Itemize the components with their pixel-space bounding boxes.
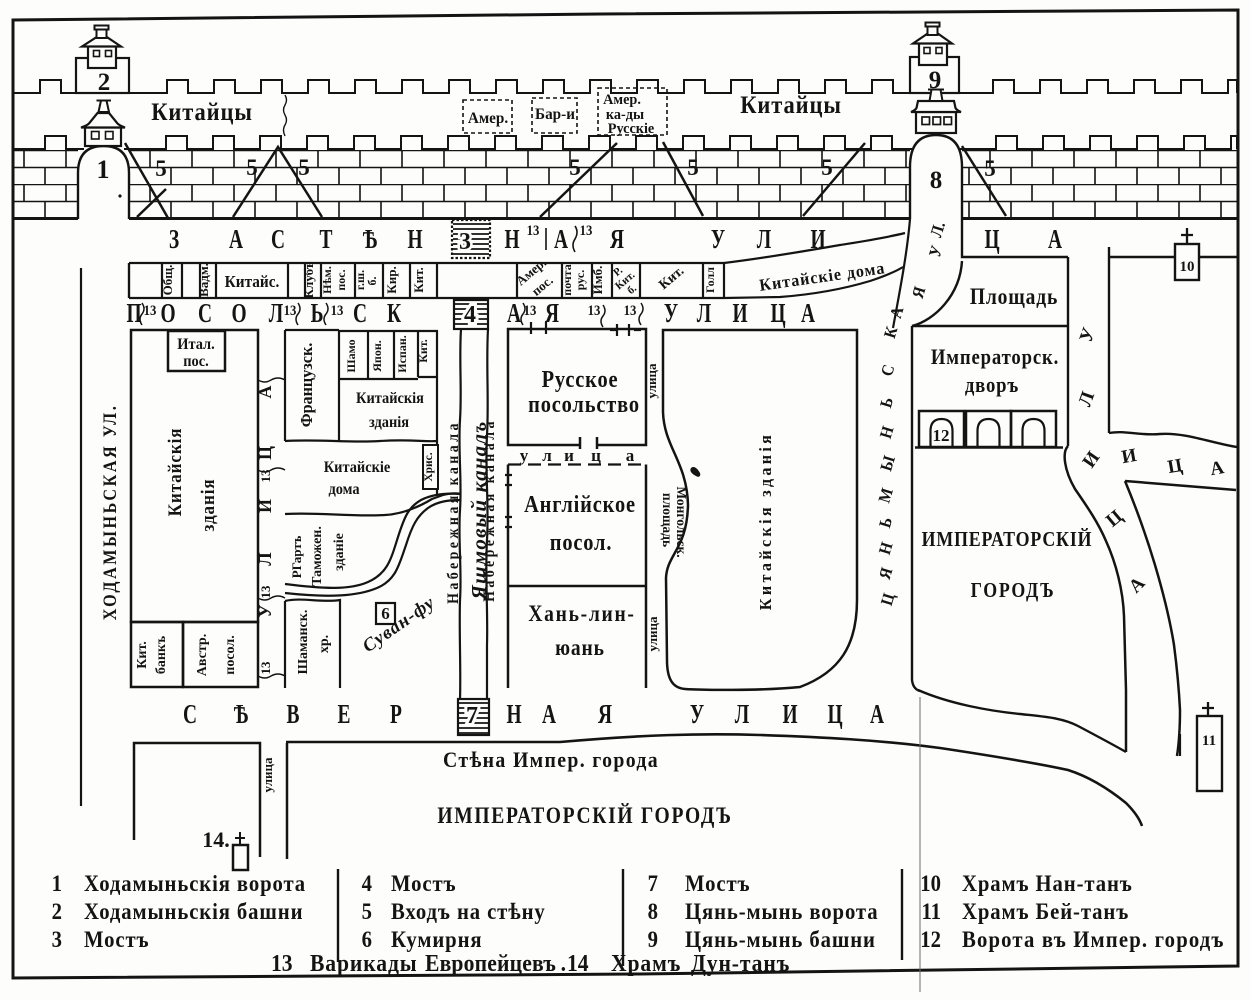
svg-text:Япон.: Япон. [370, 340, 384, 372]
svg-text:А: А [255, 386, 275, 399]
svg-text:Амер.: Амер. [468, 110, 508, 127]
svg-text:Ходамыньскія башни: Ходамыньскія башни [84, 899, 303, 924]
svg-text:12: 12 [933, 426, 950, 445]
svg-text:С: С [271, 225, 285, 255]
svg-text:Ц: Ц [827, 700, 842, 730]
svg-text:ИМПЕРАТОРСКІЙ ГОРОДЪ: ИМПЕРАТОРСКІЙ ГОРОДЪ [437, 803, 732, 829]
svg-text:Хань-лин-: Хань-лин- [528, 601, 635, 627]
svg-text:Варикады: Варикады [310, 950, 418, 976]
svg-text:Европейцевъ .: Европейцевъ . [425, 950, 566, 976]
svg-text:Амер.: Амер. [603, 92, 641, 108]
svg-text:8: 8 [648, 899, 658, 924]
svg-text:С: С [353, 299, 367, 329]
svg-text:13: 13 [524, 303, 537, 319]
svg-text:Русскіе: Русскіе [608, 121, 655, 137]
svg-text:Дун-танъ: Дун-танъ [691, 950, 790, 976]
svg-text:Храмъ Нан-танъ: Храмъ Нан-танъ [962, 871, 1133, 896]
svg-text:И: И [782, 700, 797, 730]
svg-text:Китайцы: Китайцы [740, 92, 842, 119]
svg-text:У: У [711, 225, 725, 255]
svg-text:Кит.: Кит. [416, 339, 430, 363]
svg-text:9: 9 [648, 927, 658, 952]
svg-text:зданія: зданія [369, 413, 409, 431]
svg-text:л: л [542, 446, 552, 465]
svg-text:7: 7 [466, 703, 478, 729]
svg-text:У: У [664, 299, 678, 329]
svg-text:Р: Р [390, 700, 402, 730]
svg-text:О: О [160, 299, 175, 329]
svg-text:13: 13 [258, 661, 273, 675]
svg-text:Ь: Ь [311, 299, 324, 329]
svg-text:Итал.: Итал. [177, 335, 215, 353]
svg-text:Ворота въ Импер. городъ: Ворота въ Импер. городъ [962, 927, 1225, 952]
svg-text:Испан.: Испан. [395, 335, 409, 373]
svg-text:Е: Е [338, 700, 351, 730]
svg-text:1: 1 [52, 871, 62, 896]
svg-text:юань: юань [555, 635, 605, 661]
svg-text:1: 1 [97, 155, 110, 184]
svg-text:5: 5 [298, 155, 310, 180]
svg-text:дворъ: дворъ [965, 374, 1019, 398]
svg-text:2: 2 [98, 69, 111, 96]
svg-text:Китайскія: Китайскія [356, 389, 424, 407]
svg-text:Мостъ: Мостъ [84, 927, 150, 952]
svg-text:Н: Н [504, 225, 519, 255]
svg-text:РГартъ: РГартъ [289, 535, 304, 578]
svg-text:Кир.: Кир. [384, 266, 399, 293]
svg-text:Голл: Голл [703, 267, 717, 293]
svg-text:Храмъ: Храмъ [611, 950, 681, 976]
svg-text:Ц: Ц [770, 299, 785, 329]
svg-text:7: 7 [648, 871, 658, 896]
svg-text:5: 5 [362, 899, 372, 924]
svg-text:5: 5 [687, 155, 699, 180]
svg-text:Цянь-мынь башни: Цянь-мынь башни [685, 927, 876, 952]
svg-text:Л: Л [697, 299, 712, 329]
svg-text:Клубъ: Клубъ [301, 261, 316, 298]
svg-text:улица: улица [260, 757, 275, 792]
svg-text:ГОРОДЪ: ГОРОДЪ [971, 580, 1056, 603]
svg-text:10: 10 [920, 871, 941, 896]
svg-text:И: И [255, 499, 275, 513]
svg-text:дома: дома [328, 480, 359, 498]
svg-text:Китайс.: Китайс. [225, 273, 280, 291]
svg-text:Стѣна Импер. города: Стѣна Импер. города [443, 747, 659, 772]
svg-text:Набережная канала: Набережная канала [445, 420, 462, 604]
svg-text:Имб.: Имб. [590, 266, 605, 295]
svg-text:посол.: посол. [223, 635, 238, 674]
svg-text:С: С [198, 299, 212, 329]
svg-text:Ѣ: Ѣ [234, 700, 249, 730]
svg-text:11: 11 [1202, 733, 1216, 749]
svg-text:зданія: зданія [197, 479, 218, 532]
svg-text:Н: Н [506, 700, 521, 730]
svg-text:ц: ц [591, 446, 601, 465]
svg-text:посольство: посольство [528, 390, 640, 417]
svg-text:Китайскіе: Китайскіе [324, 458, 391, 476]
svg-text:5: 5 [821, 155, 833, 180]
svg-text:Китайцы: Китайцы [151, 99, 253, 126]
svg-text:13: 13 [271, 950, 293, 976]
svg-text:Императорск.: Императорск. [931, 346, 1059, 370]
svg-text:Таможен.: Таможен. [310, 526, 325, 586]
svg-text:А: А [870, 700, 884, 730]
svg-text:у: у [520, 446, 529, 465]
svg-text:Мостъ: Мостъ [391, 871, 457, 896]
svg-text:3: 3 [459, 229, 471, 255]
svg-text:11: 11 [921, 899, 941, 924]
svg-text:И: И [732, 299, 747, 329]
svg-text:пос.: пос. [334, 269, 348, 290]
svg-text:10: 10 [1180, 259, 1195, 275]
svg-text:П: П [126, 299, 141, 329]
svg-text:А: А [554, 225, 568, 255]
svg-text:13: 13 [144, 303, 157, 319]
svg-text:З: З [169, 225, 179, 255]
svg-text:Шамо: Шамо [344, 339, 358, 372]
svg-text:Нѣм.: Нѣм. [320, 266, 334, 294]
svg-text:Л: Л [255, 552, 275, 566]
svg-text:13: 13 [331, 303, 344, 319]
svg-text:5: 5 [984, 156, 996, 181]
svg-text:Ц: Ц [984, 225, 999, 255]
svg-text:8: 8 [930, 167, 943, 194]
svg-text:А: А [542, 700, 556, 730]
svg-text:Набережная канала: Набережная канала [481, 418, 498, 602]
svg-text:Русское: Русское [542, 365, 619, 392]
svg-text:Французск.: Французск. [297, 343, 316, 428]
svg-text:Цянь-мынь ворота: Цянь-мынь ворота [685, 899, 878, 924]
svg-text:4: 4 [464, 302, 476, 328]
svg-text:13: 13 [624, 303, 637, 319]
svg-text:13: 13 [284, 303, 297, 319]
svg-text:хр.: хр. [317, 635, 332, 653]
svg-text:Т: Т [320, 225, 333, 255]
svg-text:Площадь: Площадь [970, 284, 1058, 310]
svg-text:13: 13 [580, 223, 593, 239]
svg-text:б.: б. [365, 277, 379, 286]
svg-text:Китайскія зданія: Китайскія зданія [756, 432, 775, 610]
svg-text:Ѣ: Ѣ [363, 225, 378, 255]
svg-text:Н: Н [407, 225, 422, 255]
svg-text:Кит.: Кит. [135, 641, 150, 669]
svg-text:Бар-и: Бар-и [535, 106, 575, 123]
svg-text:Китайскія: Китайскія [164, 428, 185, 517]
svg-text:улица: улица [644, 363, 659, 398]
svg-text:5: 5 [155, 156, 167, 181]
svg-text:ИМПЕРАТОРСКІЙ: ИМПЕРАТОРСКІЙ [922, 528, 1093, 552]
svg-text:14.: 14. [202, 827, 230, 852]
svg-text:А: А [507, 299, 521, 329]
svg-text:Л: Л [757, 225, 772, 255]
svg-text:12: 12 [920, 927, 941, 952]
svg-text:и: и [564, 446, 574, 465]
svg-text:рус.: рус. [573, 270, 587, 290]
svg-text:А: А [1048, 225, 1062, 255]
svg-text:Ц: Ц [255, 446, 275, 460]
svg-text:С: С [183, 700, 197, 730]
svg-text:Вадм.: Вадм. [196, 263, 211, 297]
svg-text:площадь: площадь [660, 493, 675, 547]
svg-text:Входъ на стѣну: Входъ на стѣну [391, 899, 546, 924]
svg-text:13: 13 [588, 303, 601, 319]
svg-text:Кумирня: Кумирня [391, 927, 483, 952]
svg-text:А: А [229, 225, 243, 255]
svg-text:улица: улица [645, 616, 660, 651]
svg-text:а: а [626, 446, 635, 465]
svg-text:5: 5 [246, 155, 258, 180]
svg-text:ХОДАМЫНЬСКАЯ УЛ.: ХОДАМЫНЬСКАЯ УЛ. [99, 404, 121, 621]
svg-text:Австр.: Австр. [195, 634, 210, 676]
svg-text:3: 3 [52, 927, 62, 952]
svg-text:Я: Я [598, 700, 612, 730]
svg-text:О: О [231, 299, 246, 329]
svg-text:Общ.: Общ. [160, 265, 175, 296]
svg-text:Л: Л [735, 700, 750, 730]
svg-text:А: А [801, 299, 815, 329]
svg-text:Я: Я [610, 225, 624, 255]
svg-text:посол.: посол. [550, 528, 613, 555]
svg-text:банкъ: банкъ [154, 636, 169, 674]
svg-text:14: 14 [567, 950, 589, 976]
svg-text:К: К [387, 299, 401, 329]
svg-text:В: В [287, 700, 300, 730]
svg-text:Англійское: Англійское [524, 490, 636, 517]
svg-text:Мостъ: Мостъ [685, 871, 751, 896]
svg-text:Кит.: Кит. [411, 267, 426, 293]
svg-text:Хрис.: Хрис. [423, 452, 435, 481]
svg-text:13: 13 [258, 585, 273, 599]
svg-text:почта: почта [560, 264, 574, 295]
svg-text:зданіе: зданіе [332, 533, 347, 571]
svg-text:2: 2 [52, 899, 62, 924]
svg-text:Ходамыньскія ворота: Ходамыньскія ворота [84, 871, 306, 896]
svg-text:пос.: пос. [183, 352, 209, 370]
svg-text:У: У [255, 604, 275, 617]
svg-text:У: У [690, 700, 704, 730]
svg-text:6: 6 [362, 927, 372, 952]
svg-text:4: 4 [362, 871, 372, 896]
svg-text:5: 5 [569, 155, 581, 180]
svg-text:13: 13 [527, 223, 540, 239]
svg-text:Шаманск.: Шаманск. [296, 610, 311, 675]
svg-text:Храмъ Бей-танъ: Храмъ Бей-танъ [962, 899, 1129, 924]
svg-text:Л: Л [269, 299, 284, 329]
